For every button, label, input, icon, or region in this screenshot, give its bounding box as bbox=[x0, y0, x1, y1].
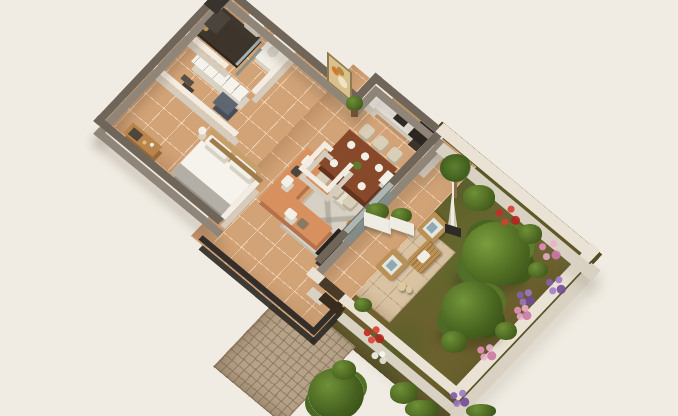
dining-chair bbox=[358, 123, 376, 140]
green-bush bbox=[466, 404, 496, 416]
dining-chair bbox=[372, 134, 390, 151]
dining-chair bbox=[386, 146, 404, 163]
floor-plan-render bbox=[0, 0, 678, 416]
